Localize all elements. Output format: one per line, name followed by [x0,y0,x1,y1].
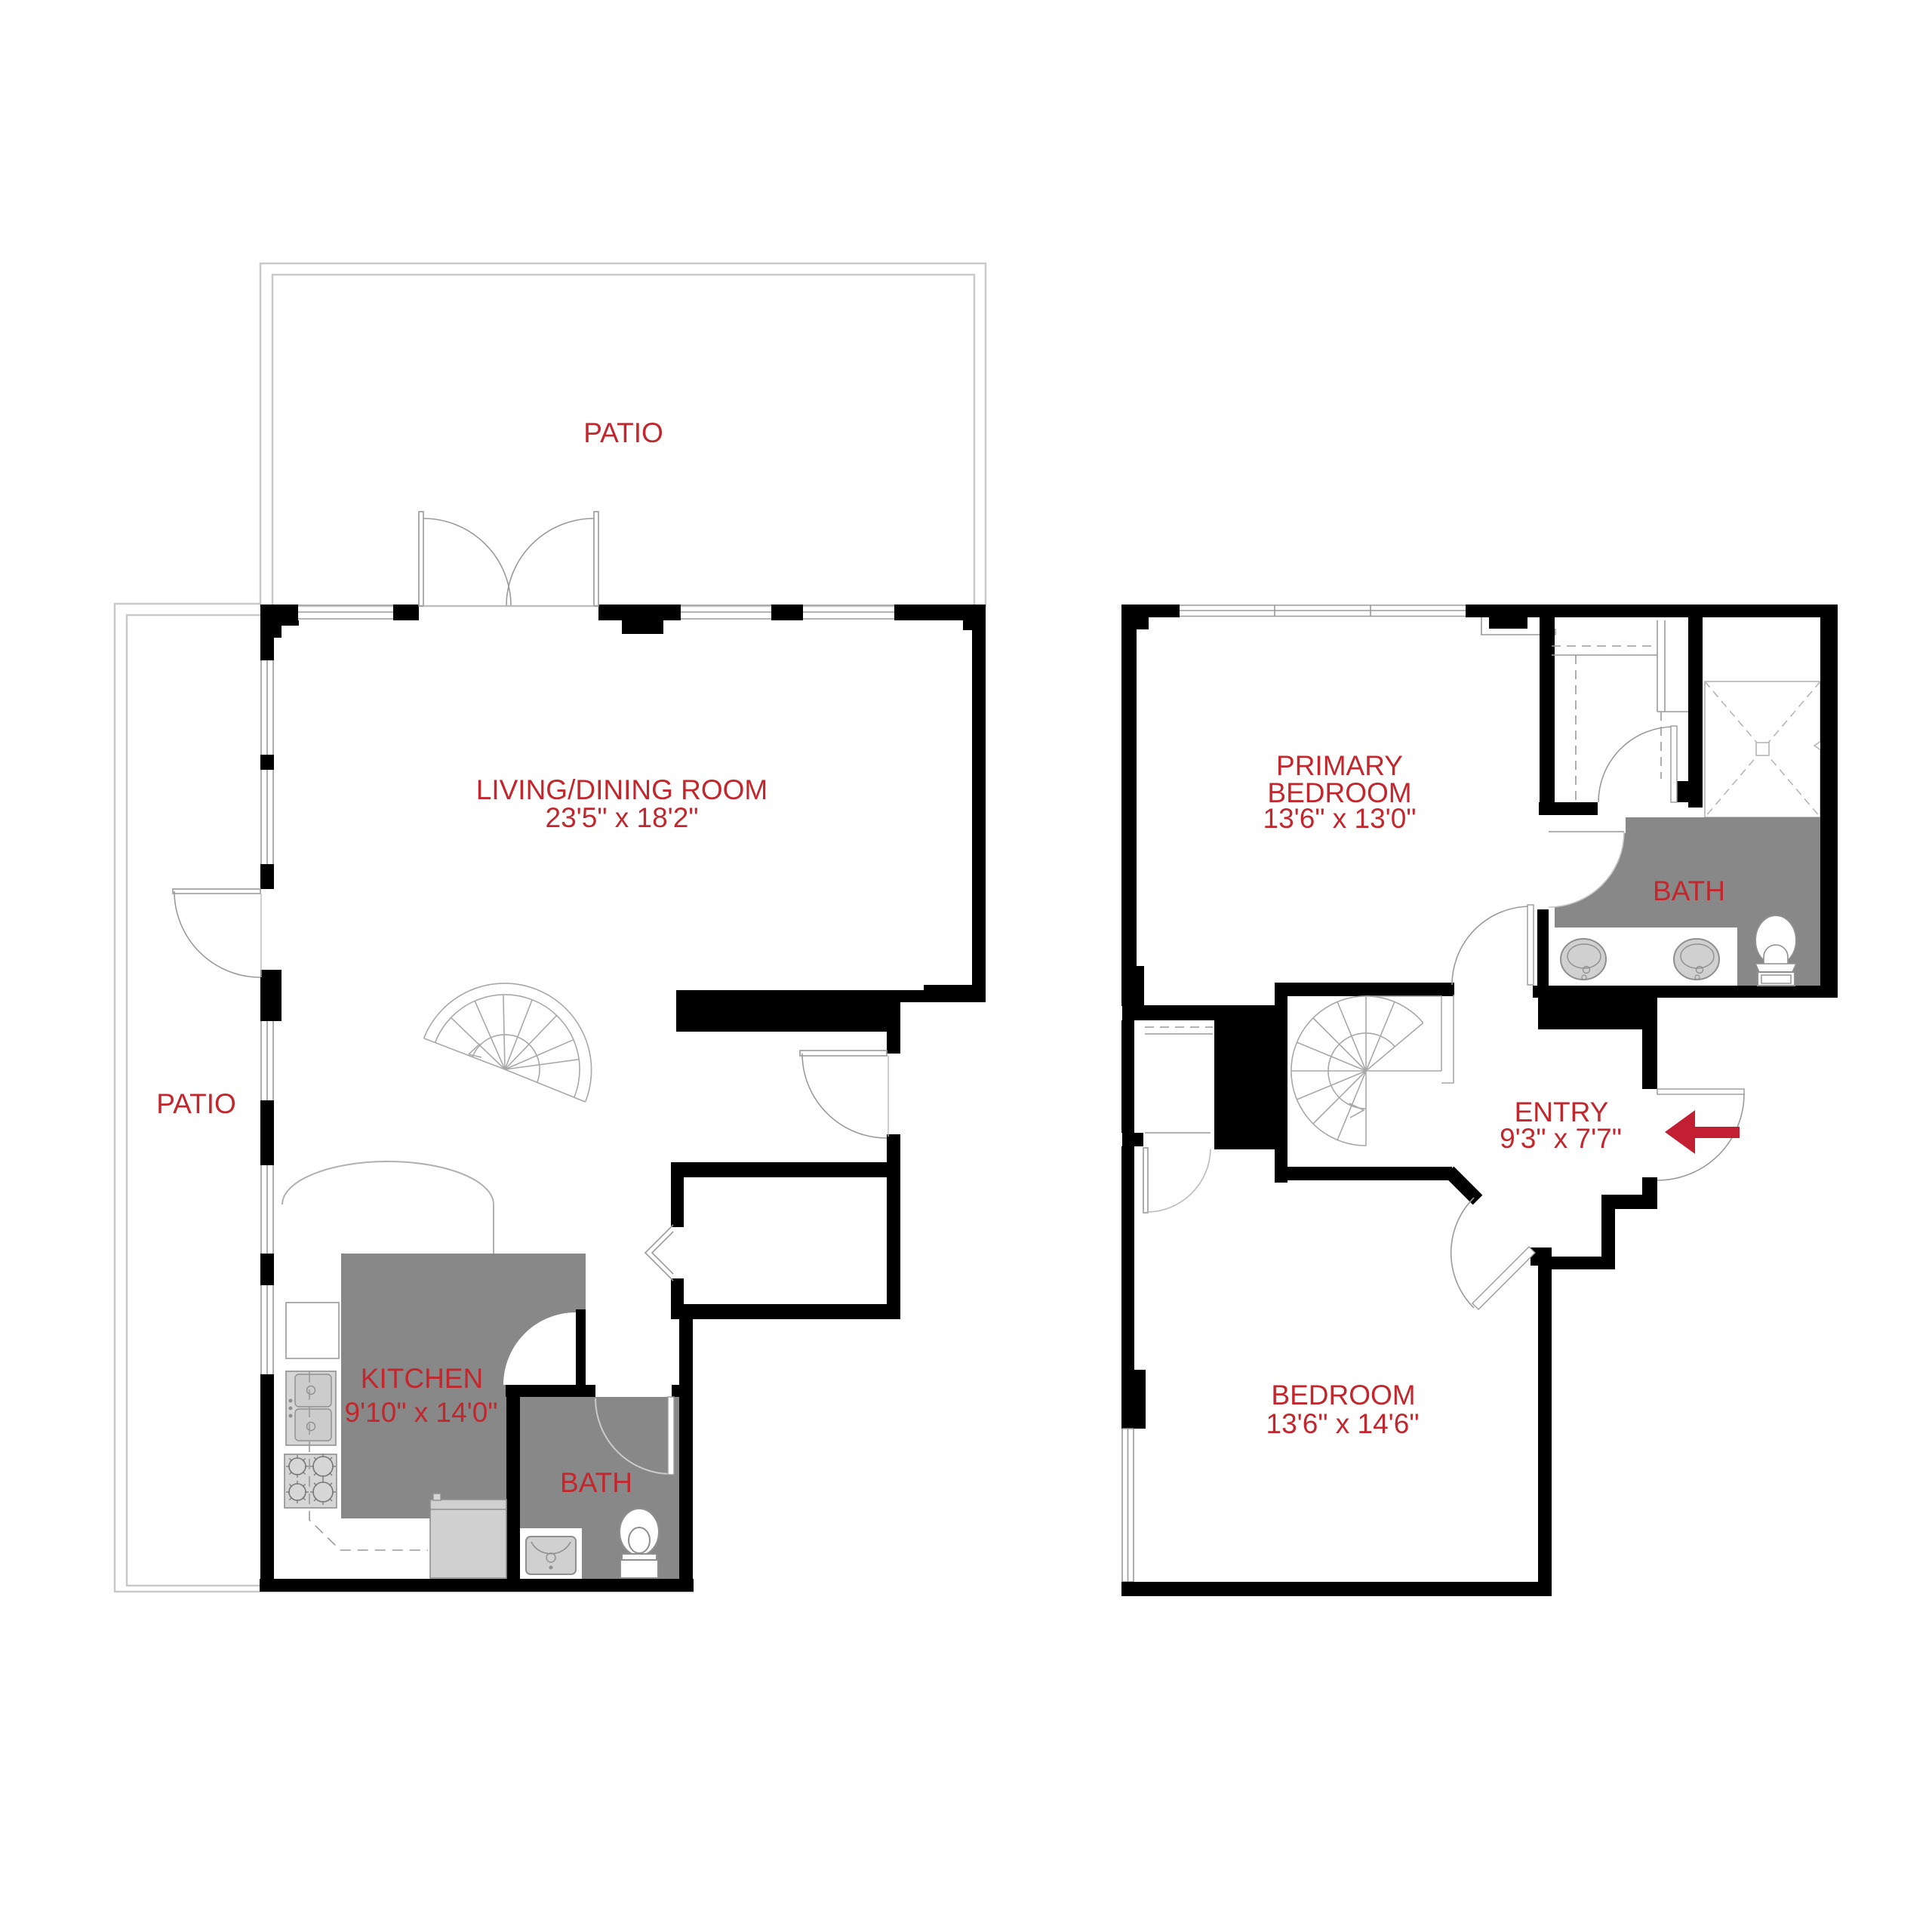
svg-text:KITCHEN: KITCHEN [361,1363,483,1394]
svg-text:BATH: BATH [1653,875,1725,906]
svg-text:23'5" x 18'2": 23'5" x 18'2" [546,802,699,833]
svg-text:PATIO: PATIO [583,417,663,448]
svg-text:13'6" x 14'6": 13'6" x 14'6" [1266,1408,1420,1439]
svg-text:BEDROOM: BEDROOM [1271,1380,1415,1411]
svg-text:LIVING/DINING ROOM: LIVING/DINING ROOM [476,774,768,805]
svg-text:BATH: BATH [560,1467,632,1498]
svg-text:PRIMARY: PRIMARY [1276,750,1403,781]
svg-text:PATIO: PATIO [156,1088,236,1119]
svg-text:13'6" x 13'0": 13'6" x 13'0" [1263,803,1417,834]
svg-text:9'10" x 14'0": 9'10" x 14'0" [345,1397,498,1428]
svg-text:9'3" x 7'7": 9'3" x 7'7" [1500,1123,1622,1154]
